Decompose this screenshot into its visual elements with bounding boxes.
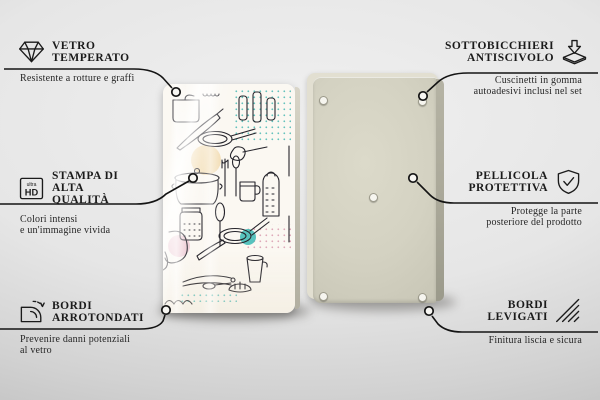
- antislip-pad: [319, 292, 328, 301]
- callout-title: STAMPA DI ALTA QUALITÀ: [52, 170, 150, 206]
- front-panel-print: [163, 84, 295, 313]
- callout-subtitle: Resistente a rotture e graffi: [20, 74, 150, 85]
- callout-title: BORDI ARROTONDATI: [52, 300, 144, 324]
- front-panel: [163, 84, 300, 313]
- callout-title: SOTTOBICCHIERI ANTISCIVOLO: [445, 40, 554, 64]
- callout-subtitle: Protegge la parte posteriore del prodott…: [445, 207, 582, 228]
- antislip-pad: [369, 193, 378, 202]
- rounded-corner-icon: [18, 297, 45, 326]
- back-panel-face: [313, 77, 436, 303]
- callout-subtitle: Cuscinetti in gomma autoadesivi inclusi …: [445, 76, 582, 97]
- callout-title: VETRO TEMPERATO: [52, 40, 130, 64]
- callout-sottobicchieri-antiscivolo: SOTTOBICCHIERI ANTISCIVOLO Cuscinetti in…: [445, 37, 582, 97]
- antislip-pad: [418, 293, 427, 302]
- ultra-hd-icon: ultra HD: [18, 174, 45, 203]
- callout-subtitle: Prevenire danni potenziali al vetro: [20, 335, 150, 356]
- product-infographic: VETRO TEMPERATO Resistente a rotture e g…: [0, 0, 600, 400]
- antislip-pad: [319, 96, 328, 105]
- front-panel-side-edge: [295, 87, 300, 309]
- callout-title: BORDI LEVIGATI: [445, 299, 548, 323]
- back-panel-side-edge: [436, 79, 444, 301]
- callout-stampa-qualita: ultra HD STAMPA DI ALTA QUALITÀ Colori i…: [18, 170, 150, 236]
- shield-check-icon: [555, 167, 582, 196]
- callout-pellicola-protettiva: PELLICOLA PROTETTIVA Protegge la parte p…: [445, 167, 582, 228]
- antislip-pad: [418, 97, 427, 106]
- callout-subtitle: Finitura liscia e sicura: [445, 336, 582, 347]
- callout-title: PELLICOLA PROTETTIVA: [445, 170, 548, 194]
- svg-text:HD: HD: [25, 187, 39, 197]
- callout-vetro-temperato: VETRO TEMPERATO Resistente a rotture e g…: [18, 37, 150, 85]
- diamond-icon: [18, 37, 45, 66]
- coaster-arrow-icon: [561, 37, 588, 66]
- hatching-icon: [555, 296, 582, 325]
- callout-bordi-arrotondati: BORDI ARROTONDATI Prevenire danni potenz…: [18, 297, 150, 356]
- back-panel: [313, 77, 444, 303]
- callout-bordi-levigati: BORDI LEVIGATI Finitura liscia e sicura: [445, 296, 582, 347]
- kitchen-utensils-print: [163, 84, 295, 313]
- callout-subtitle: Colori intensi e un'immagine vivida: [20, 215, 150, 236]
